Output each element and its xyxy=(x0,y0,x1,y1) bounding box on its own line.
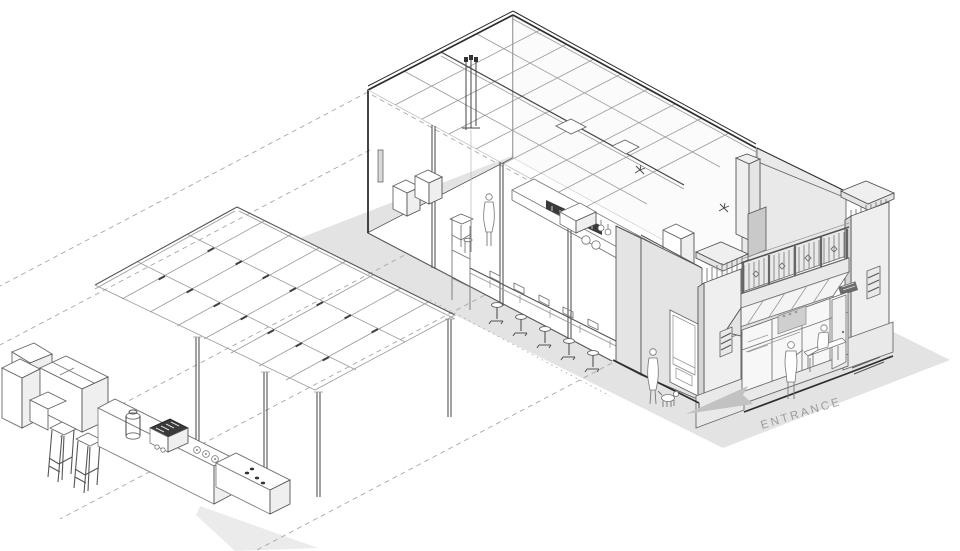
wall-door-slit xyxy=(378,150,383,182)
takeaway-hatch xyxy=(670,310,698,396)
wall-sconce-left xyxy=(720,327,732,357)
bar-shadow xyxy=(196,506,318,551)
storage-boxes xyxy=(2,343,108,432)
entry-door xyxy=(832,295,846,369)
wall-sconce-right xyxy=(867,266,880,299)
axonometric-diagram-page: ENTRANCE xyxy=(0,0,960,551)
bar-stools-outdoor xyxy=(48,422,102,493)
pergola-beam-ticks xyxy=(159,248,378,361)
outdoor-coffee-bar xyxy=(2,343,290,514)
chimney-box xyxy=(748,207,766,257)
axonometric-diagram: ENTRANCE xyxy=(0,0,960,551)
